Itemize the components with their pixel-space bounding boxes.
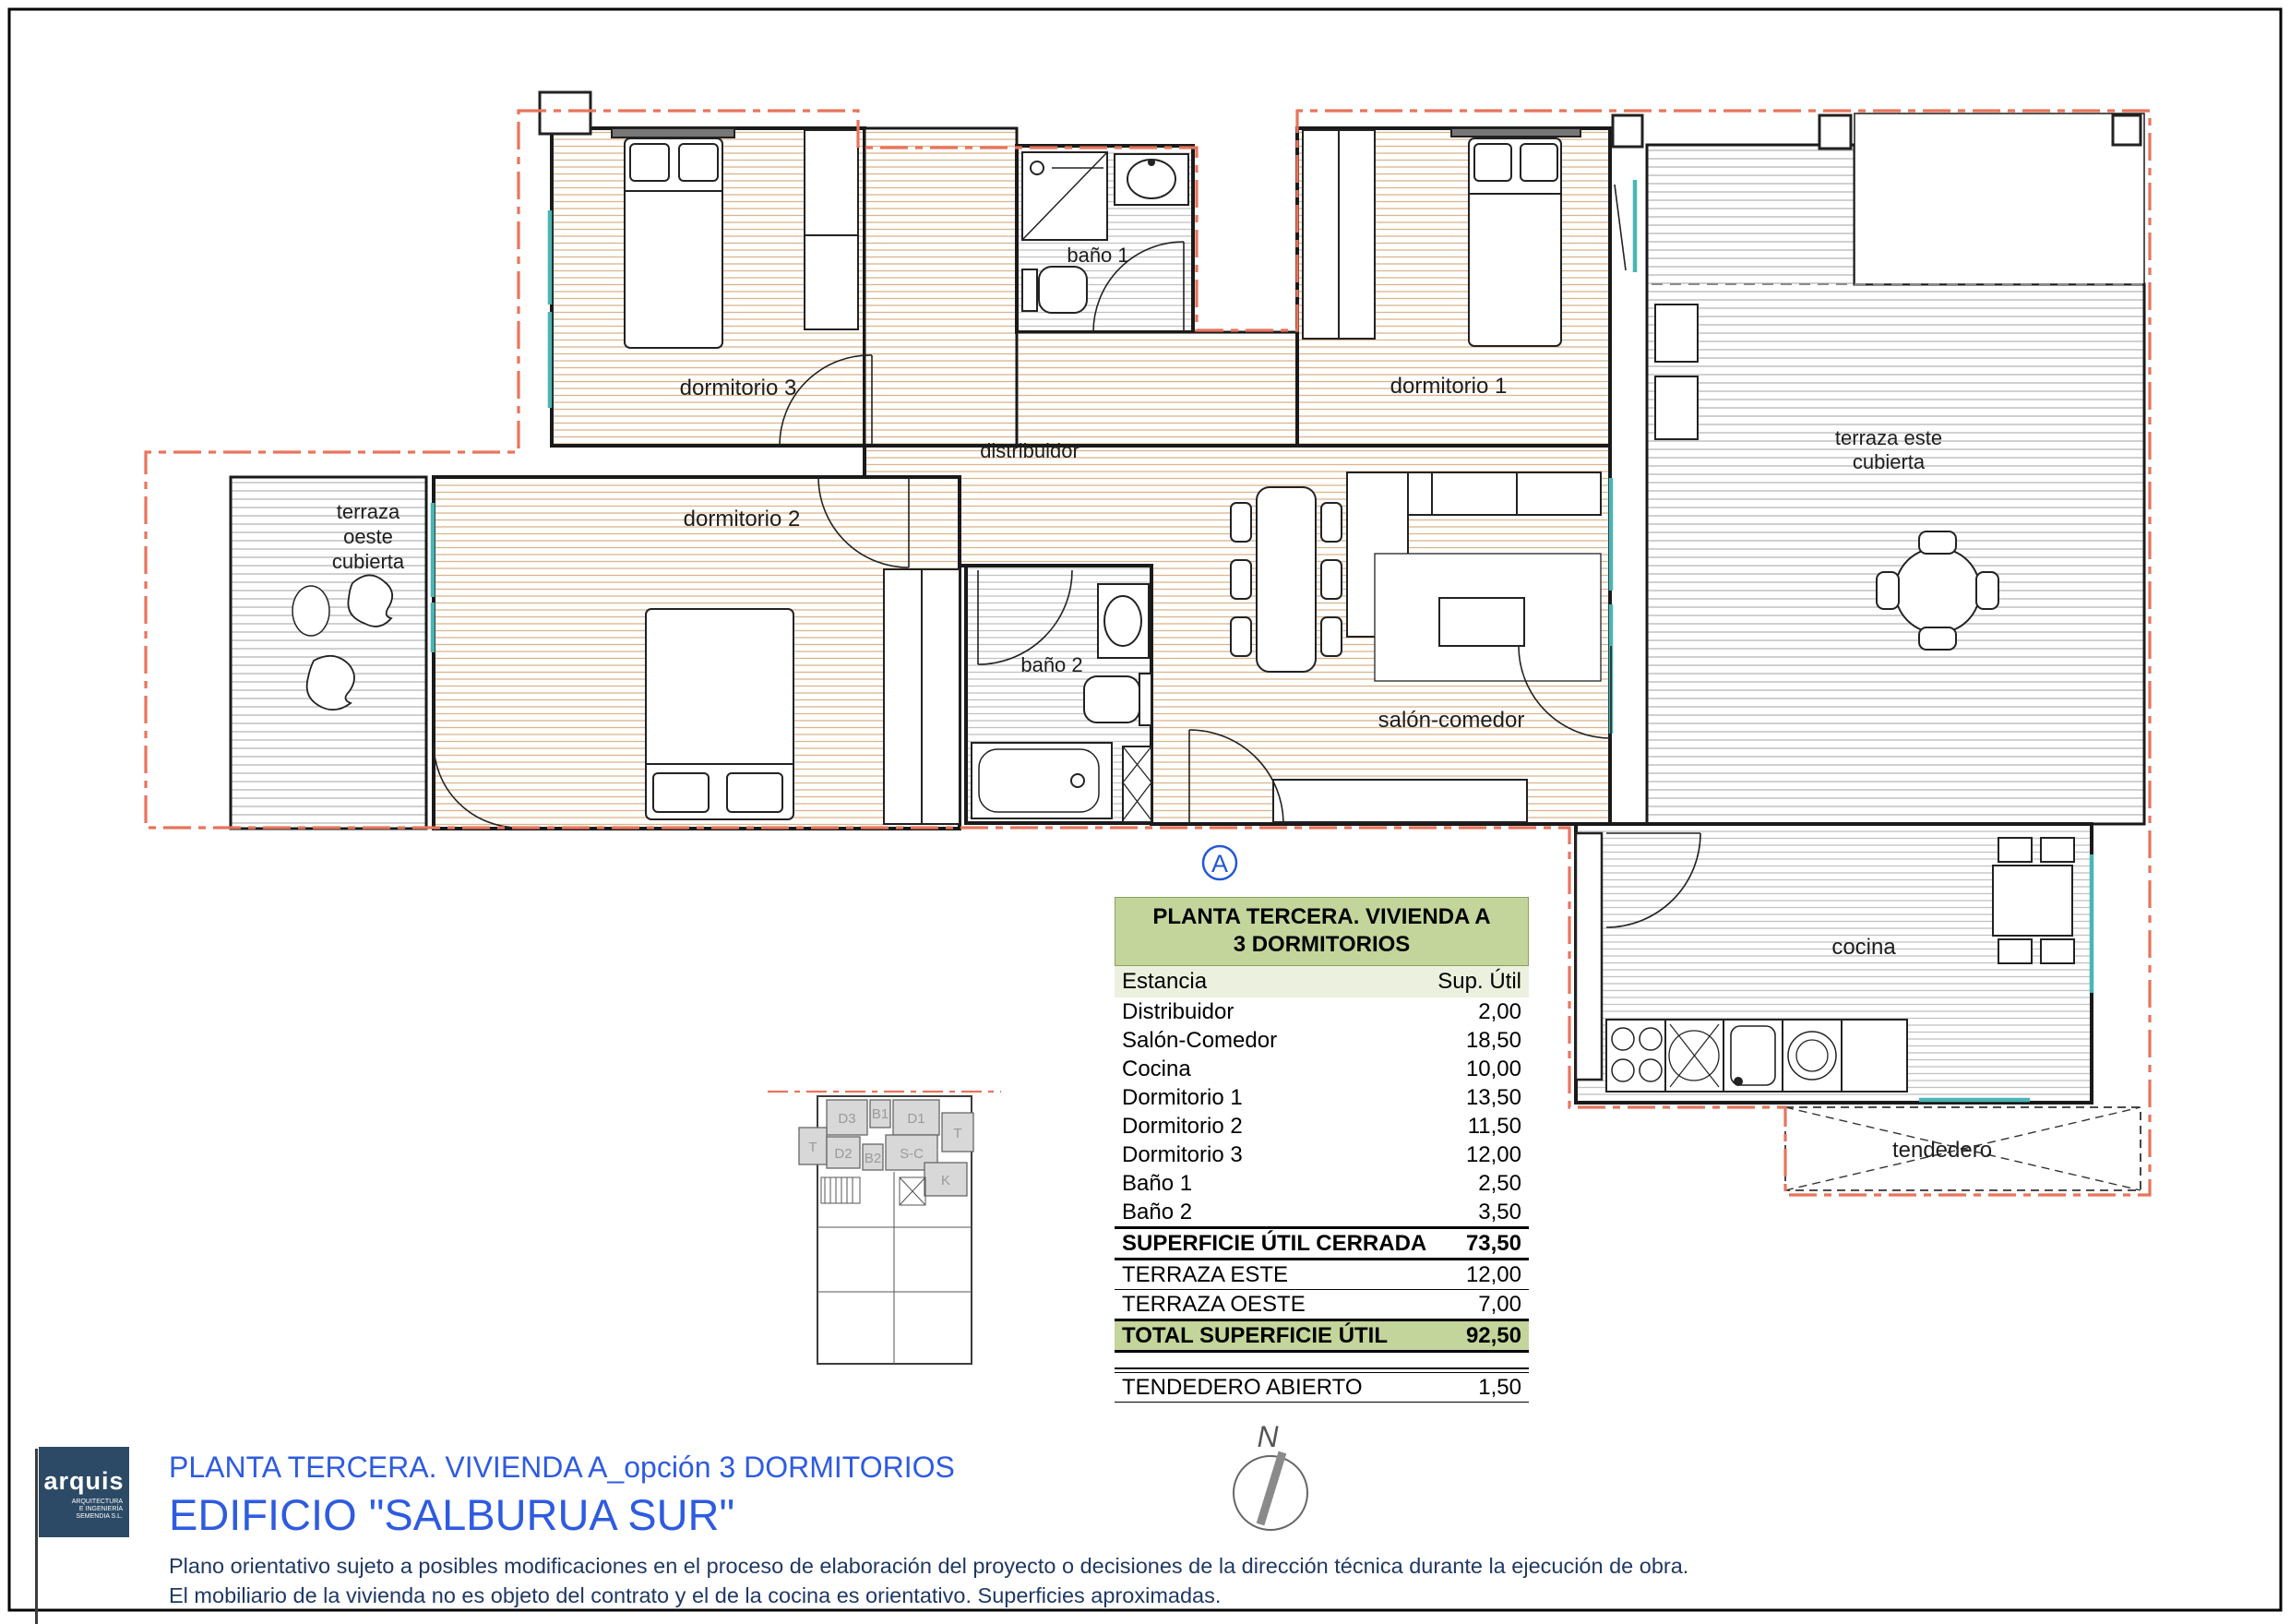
toilet-bano1	[1039, 267, 1087, 313]
row-value: 7,00	[1478, 1292, 1521, 1317]
label-salon: salón-comedor	[1378, 708, 1525, 733]
row-label: Baño 1	[1122, 1171, 1192, 1196]
disclaimer-line1: Plano orientativo sujeto a posibles modi…	[169, 1554, 1688, 1579]
shaft-bano2	[1123, 746, 1151, 822]
label-dormitorio2: dormitorio 2	[684, 507, 801, 531]
label-bano2: baño 2	[1020, 653, 1082, 676]
kitchen-chair	[1998, 939, 2032, 963]
kp-label-t-left: T	[808, 1140, 817, 1155]
table-row: Cocina10,00	[1115, 1055, 1529, 1083]
kp-label-d1: D1	[907, 1111, 924, 1127]
row-label: SUPERFICIE ÚTIL CERRADA	[1122, 1231, 1426, 1256]
col-room: Estancia	[1122, 969, 1207, 995]
col-area: Sup. Útil	[1437, 969, 1521, 995]
label-distribuidor: distribuidor	[980, 439, 1079, 462]
kp-label-t-right: T	[953, 1126, 961, 1141]
hob-burner	[1640, 1028, 1662, 1050]
pillow	[679, 144, 718, 181]
building-title: EDIFICIO "SALBURUA SUR"	[169, 1489, 734, 1540]
dining-table	[1257, 487, 1316, 672]
table-row: Dormitorio 312,00	[1115, 1140, 1529, 1169]
row-label: TENDEDERO ABIERTO	[1122, 1375, 1363, 1400]
terrace-cabinet	[1655, 304, 1698, 362]
washer-drum-inner	[1796, 1040, 1828, 1071]
kp-label-d2: D2	[834, 1146, 852, 1162]
label-terraza-oeste-3: cubierta	[332, 550, 405, 573]
label-terraza-oeste-1: terraza	[337, 500, 400, 523]
table-row-terraza-oeste: TERRAZA OESTE7,00	[1115, 1290, 1529, 1319]
chair	[1231, 503, 1251, 542]
label-terraza-este-2: cubierta	[1853, 450, 1926, 473]
room-terraza-oeste	[231, 477, 426, 829]
kitchen-column	[1576, 833, 1602, 1080]
pillar	[1613, 115, 1642, 147]
plant	[348, 575, 392, 626]
table-row: Salón-Comedor18,50	[1115, 1026, 1529, 1055]
kp-label-sc: S-C	[900, 1146, 924, 1162]
kitchen-table	[1993, 866, 2072, 936]
row-value: 13,50	[1466, 1085, 1521, 1110]
hob-burner	[1640, 1059, 1662, 1081]
plant	[292, 586, 329, 636]
terraza-este-open	[1855, 113, 2144, 284]
row-label: Distribuidor	[1122, 999, 1234, 1024]
sideboard	[1273, 780, 1527, 822]
toilet-tank-bano2	[1139, 674, 1151, 725]
table-row-total: TOTAL SUPERFICIE ÚTIL92,50	[1115, 1319, 1529, 1353]
kitchen-chair	[2041, 939, 2074, 963]
kp-label-b1: B1	[872, 1106, 889, 1122]
unit-marker: A	[1203, 846, 1236, 879]
row-value: 18,50	[1466, 1028, 1521, 1053]
toilet-tank-bano1	[1022, 269, 1037, 311]
row-value: 10,00	[1466, 1057, 1521, 1081]
table-row-terraza-este: TERRAZA ESTE12,00	[1115, 1260, 1529, 1290]
label-dormitorio1: dormitorio 1	[1390, 374, 1508, 399]
table-title-line2: 3 DORMITORIOS	[1115, 931, 1528, 959]
key-plan: D3 B1 D1 T T D2 B2 S-C K	[768, 1092, 1001, 1364]
room-corridor	[865, 128, 1017, 446]
areas-table-subheader: Estancia Sup. Útil	[1115, 966, 1529, 997]
plant	[307, 656, 354, 710]
table-row-subtotal: SUPERFICIE ÚTIL CERRADA73,50	[1115, 1226, 1529, 1260]
pillar	[2113, 115, 2141, 145]
row-value: 12,00	[1466, 1142, 1521, 1167]
marker-letter: A	[1211, 850, 1228, 878]
pillow	[653, 773, 709, 812]
table-row: Dormitorio 211,50	[1115, 1112, 1529, 1140]
row-label: TOTAL SUPERFICIE ÚTIL	[1122, 1323, 1388, 1348]
coffee-table	[1439, 598, 1524, 646]
terrace-chair	[1976, 572, 1998, 609]
row-value: 73,50	[1466, 1231, 1521, 1256]
door-leaf-terraza-dorm1	[1615, 185, 1626, 270]
bed1-headboard	[1451, 128, 1580, 137]
row-value: 2,00	[1478, 999, 1521, 1024]
chair	[1231, 617, 1251, 656]
title-block: arquis ARQUITECTURA E INGENIERÍA SEMENDI…	[0, 1421, 2290, 1619]
row-label: TERRAZA OESTE	[1122, 1292, 1306, 1317]
row-value: 12,00	[1466, 1262, 1521, 1287]
table-row: Baño 23,50	[1115, 1198, 1529, 1226]
shower-drain	[1031, 161, 1044, 174]
label-terraza-oeste-2: oeste	[343, 525, 393, 548]
table-row: Distribuidor2,00	[1115, 997, 1529, 1026]
sink-drain	[1735, 1078, 1742, 1085]
row-value: 11,50	[1468, 1114, 1521, 1139]
row-value: 92,50	[1466, 1323, 1521, 1348]
wardrobe-dormitorio3	[805, 130, 858, 329]
terrace-chair	[1919, 531, 1956, 554]
toilet-bano2	[1084, 676, 1139, 722]
table-gap	[1115, 1353, 1529, 1369]
row-value: 3,50	[1478, 1200, 1521, 1224]
kitchen-sink	[1731, 1026, 1775, 1085]
row-label: Dormitorio 1	[1122, 1085, 1243, 1110]
hob-burner	[1612, 1059, 1634, 1081]
shaft-box	[540, 92, 590, 134]
logo-tail	[35, 1449, 38, 1624]
logo-sub1: ARQUITECTURA	[39, 1499, 123, 1506]
label-terraza-este-1: terraza este	[1835, 426, 1942, 449]
row-label: Salón-Comedor	[1122, 1028, 1277, 1053]
terrace-chair	[1919, 627, 1956, 650]
row-label: Cocina	[1122, 1057, 1191, 1081]
logo-sub3: SEMENDIA S.L.	[39, 1513, 123, 1521]
table-row: Baño 12,50	[1115, 1169, 1529, 1198]
label-bano1: baño 1	[1067, 244, 1128, 267]
hob-burner	[1612, 1028, 1634, 1050]
areas-table-header: PLANTA TERCERA. VIVIENDA A 3 DORMITORIOS	[1115, 897, 1529, 966]
disclaimer-line2: El mobiliario de la vivienda no es objet…	[169, 1583, 1221, 1608]
pillow	[630, 144, 669, 181]
tap	[1149, 160, 1154, 165]
table-title-line1: PLANTA TERCERA. VIVIENDA A	[1115, 903, 1528, 931]
terrace-round-table	[1895, 548, 1980, 633]
chair	[1321, 560, 1342, 599]
pillow	[1474, 144, 1511, 181]
plan-subtitle: PLANTA TERCERA. VIVIENDA A_opción 3 DORM…	[169, 1451, 955, 1485]
bathtub-drain	[1071, 774, 1084, 787]
terrace-chair	[1877, 572, 1899, 609]
row-value: 2,50	[1478, 1171, 1521, 1196]
areas-table: PLANTA TERCERA. VIVIENDA A 3 DORMITORIOS…	[1115, 897, 1529, 1403]
kitchen-chair	[2041, 838, 2074, 862]
chair	[1321, 503, 1342, 542]
label-cocina: cocina	[1831, 935, 1896, 960]
row-label: Baño 2	[1122, 1200, 1192, 1224]
chair	[1321, 617, 1342, 656]
logo-subtext: ARQUITECTURA E INGENIERÍA SEMENDIA S.L.	[39, 1499, 129, 1521]
logo-sub2: E INGENIERÍA	[39, 1506, 123, 1513]
pillow	[1521, 144, 1557, 181]
row-label: TERRAZA ESTE	[1122, 1262, 1288, 1287]
chair	[1231, 560, 1251, 599]
label-tendedero: tendedero	[1892, 1138, 1992, 1163]
row-label: Dormitorio 2	[1122, 1114, 1243, 1139]
terrace-cabinet	[1655, 376, 1698, 439]
kp-label-k: K	[941, 1173, 950, 1188]
room-hall-strip	[1017, 332, 1297, 446]
bed3-headboard	[612, 128, 734, 137]
kp-label-b2: B2	[865, 1151, 881, 1166]
table-row: Dormitorio 113,50	[1115, 1083, 1529, 1112]
sink-bano2	[1104, 596, 1141, 646]
logo-text: arquis	[39, 1467, 129, 1496]
kitchen-chair	[1998, 838, 2032, 862]
arquis-logo: arquis ARQUITECTURA E INGENIERÍA SEMENDI…	[39, 1447, 129, 1537]
pillar	[1819, 115, 1851, 149]
pillow	[727, 773, 782, 812]
row-value: 1,50	[1478, 1375, 1521, 1400]
label-dormitorio3: dormitorio 3	[680, 376, 797, 400]
table-row-tendedero: TENDEDERO ABIERTO1,50	[1115, 1372, 1529, 1403]
sheet: dormitorio 3 dormitorio 1 dormitorio 2 d…	[0, 0, 2290, 1619]
kp-label-d3: D3	[838, 1111, 855, 1127]
row-label: Dormitorio 3	[1122, 1142, 1243, 1167]
